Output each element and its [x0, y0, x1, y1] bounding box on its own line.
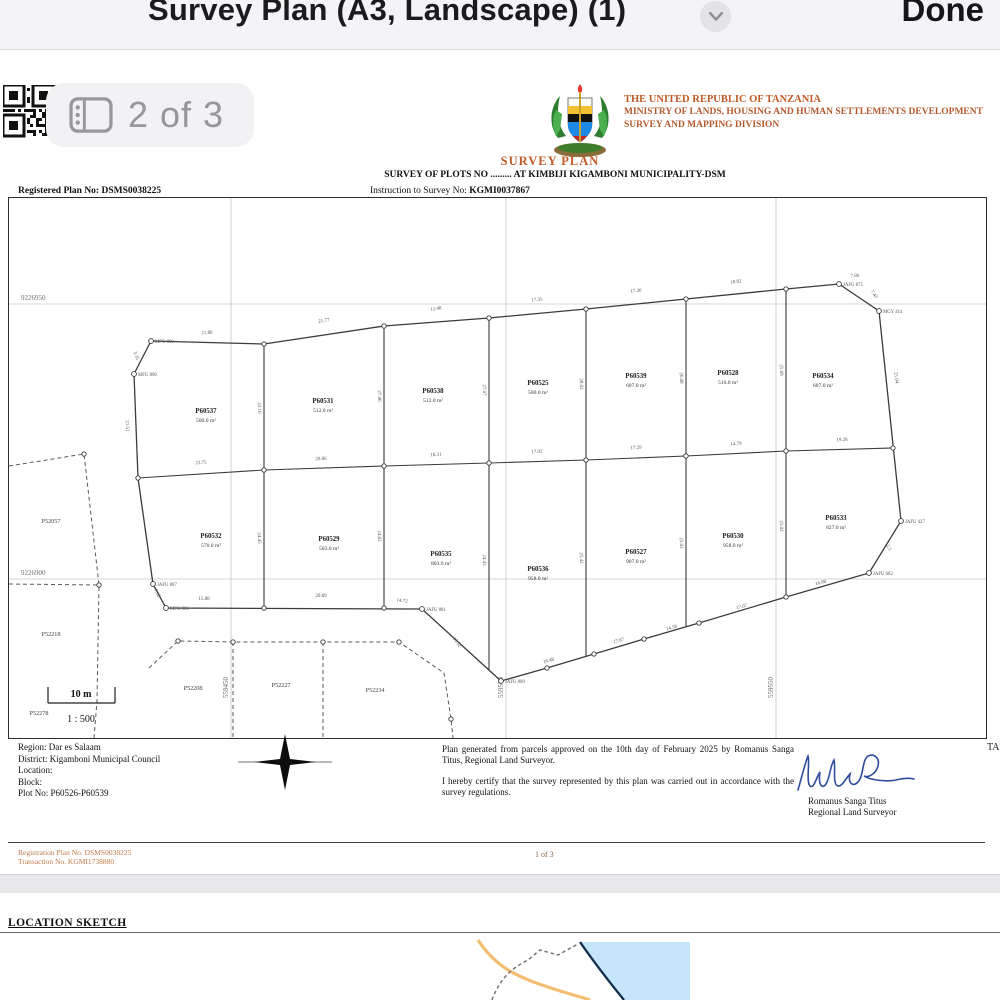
edge-measurement: 17.29: [630, 446, 642, 451]
edge-measurement: 28.02: [578, 378, 583, 390]
top-row-dividers: [264, 289, 786, 470]
scale-bar-label: 10 m: [71, 689, 93, 700]
page-indicator-badge[interactable]: 2 of 3: [46, 83, 254, 147]
plot-area: 510.0 m²: [718, 380, 738, 386]
survey-beacon-node: [97, 583, 101, 587]
plot-number: P60525: [527, 380, 549, 387]
survey-beacon-node: [891, 446, 895, 450]
plot-number: P60532: [200, 533, 222, 540]
instruction-to-survey: Instruction to Survey No: KGMI0037867: [370, 186, 530, 196]
plot-number: P60528: [717, 370, 739, 377]
neighbor-plot-number: P52234: [366, 687, 385, 694]
survey-beacon-node: [382, 606, 386, 610]
location-sketch-title: LOCATION SKETCH: [8, 917, 127, 929]
edge-measurement: 22.16: [256, 402, 261, 414]
page-gap-separator: [0, 874, 1000, 895]
edge-measurement: 21.51: [124, 420, 130, 432]
plot-number: P60534: [812, 373, 834, 380]
plot-number: P60539: [625, 373, 647, 380]
survey-beacon-node: [262, 468, 266, 472]
plot-number: P60537: [195, 408, 217, 415]
beacon-label: JAFU 887: [157, 583, 177, 588]
surveyor-signature: [792, 748, 917, 796]
grid-layer: 92269509226900559450559500559550: [9, 198, 986, 738]
grid-label-northing: 9226900: [21, 569, 46, 577]
survey-plan-title: SURVEY PLAN: [460, 154, 640, 169]
plot-area: 500.0 m²: [196, 418, 216, 424]
chevron-down-icon: [709, 12, 723, 21]
beacon-label: MFG 880: [155, 340, 174, 345]
edge-measurement: 25.92: [778, 520, 783, 532]
edge-measurement: 18.31: [430, 453, 442, 458]
plot-area: 500.0 m²: [528, 390, 548, 396]
footer-transaction-no: Transaction No. KGMI1738880: [18, 857, 131, 866]
survey-beacon-node: [697, 621, 701, 625]
plot-area: 607.0 m²: [626, 383, 646, 389]
edge-measurement: 24.43: [481, 554, 486, 566]
survey-beacon-node: [684, 454, 688, 458]
plot-area: 570.0 m²: [201, 543, 221, 549]
signer-title: Regional Land Surveyor: [808, 807, 896, 818]
plot-area: 958.0 m²: [528, 576, 548, 582]
neighbor-dividers-south: [233, 642, 323, 738]
header-ministry: MINISTRY OF LANDS, HOUSING AND HUMAN SET…: [624, 106, 983, 119]
title-menu-button[interactable]: [700, 1, 731, 32]
neighbor-plot-number: P52057: [42, 518, 61, 525]
plot-number: P60536: [527, 566, 549, 573]
beacon-label: JAFU 682: [873, 572, 893, 577]
pages-sidebar-icon: [68, 96, 114, 134]
survey-beacon-node: [164, 606, 169, 611]
map-edge-note: TA: [987, 742, 1000, 753]
edge-measurement: 3.35: [132, 351, 140, 361]
document-title: Survey Plan (A3, Landscape) (1): [148, 0, 626, 28]
survey-beacon-node: [397, 640, 401, 644]
north-arrow: [230, 732, 340, 794]
survey-subtitle: SURVEY OF PLOTS NO ......... AT KIMBIJI …: [300, 170, 810, 180]
header-country: THE UNITED REPUBLIC OF TANZANIA: [624, 93, 983, 106]
survey-beacon-node: [82, 452, 86, 456]
survey-beacon-node: [149, 339, 154, 344]
neighbor-plot-number: P52208: [184, 685, 203, 692]
plan-drawing: 92269509226900559450559500559550 P605375…: [9, 198, 986, 738]
edge-measurement: 17.67: [613, 637, 626, 645]
ministry-header: THE UNITED REPUBLIC OF TANZANIA MINISTRY…: [624, 93, 983, 132]
survey-map: 92269509226900559450559500559550 P605375…: [8, 197, 987, 739]
plot-number: P60535: [430, 551, 452, 558]
survey-beacon-node: [584, 307, 588, 311]
beacon-label: MGY 414: [883, 310, 903, 315]
edge-measurement: 27.06: [376, 390, 381, 402]
edge-measurement: 17.02: [531, 450, 543, 455]
survey-beacon-node: [382, 464, 386, 468]
registered-plan-no: Registered Plan No: DSMS0038225: [18, 186, 161, 196]
edge-measurement: 20.86: [315, 457, 327, 462]
edge-measurement: 15.88: [198, 597, 210, 602]
edge-measurement: 17.35: [531, 297, 543, 303]
edge-measurement: 7.86: [850, 274, 859, 279]
grid-label-northing: 9226950: [21, 294, 46, 302]
footer-registration: Registration Plan No. DSMS0038225 Transa…: [18, 848, 131, 866]
edge-measurement: 21.77: [318, 318, 330, 325]
beacon-label: JAFU 881: [426, 608, 446, 613]
middle-line: [138, 448, 893, 478]
edge-measurement: 25.42: [578, 552, 583, 564]
edge-measurement: 11.52: [451, 637, 462, 649]
road-line: [478, 940, 590, 1000]
survey-beacon-node: [837, 282, 842, 287]
certification-paragraph-2: I hereby certify that the survey represe…: [442, 776, 794, 798]
survey-beacon-node: [784, 287, 788, 291]
survey-beacon-node: [487, 461, 491, 465]
document-page: 2 of 3 THE UNITED REPUBLIC OF TANZANIA M…: [0, 50, 1000, 874]
survey-beacon-node: [784, 595, 788, 599]
edge-measurement: 21.80: [201, 331, 213, 337]
sheet-footer-line: [8, 842, 985, 843]
neighbor-plot-number: P52278: [30, 710, 49, 717]
edge-measurement: 24.02: [376, 530, 381, 542]
certification-block: Plan generated from parcels approved on …: [442, 744, 794, 808]
survey-beacon-node: [176, 639, 180, 643]
plot-number: P60530: [722, 533, 744, 540]
survey-beacon-node: [136, 476, 140, 480]
neighbor-plot-number: P52218: [42, 631, 61, 638]
edge-measurement: 21.04: [892, 372, 898, 384]
survey-beacon-node: [899, 519, 904, 524]
edge-measurement: 12.48: [430, 306, 442, 312]
plot-number: P60531: [312, 398, 334, 405]
beacon-label: JAFU 875: [843, 283, 863, 288]
plot-number: P60527: [625, 549, 647, 556]
location-sketch-header: LOCATION SKETCH: [0, 917, 1000, 933]
survey-beacon-node: [545, 666, 549, 670]
title-bar: Survey Plan (A3, Landscape) (1) Done: [0, 0, 1000, 50]
bottom-row-dividers: [264, 451, 786, 670]
footer-registration-no: Registration Plan No. DSMS0038225: [18, 848, 131, 857]
plot-area: 503.0 m²: [319, 546, 339, 552]
survey-beacon-node: [877, 309, 882, 314]
survey-beacon-node: [487, 316, 491, 320]
plot-area: 512.0 m²: [313, 408, 333, 414]
plot-area: 958.0 m²: [723, 543, 743, 549]
signer-name: Romanus Sanga Titus: [808, 796, 896, 807]
survey-beacon-node: [132, 372, 137, 377]
edge-measurement: 26.08: [678, 372, 683, 384]
plot-number: P60533: [825, 515, 847, 522]
plot-number: P60529: [318, 536, 340, 543]
neighbor-boundary-west2: [9, 584, 99, 585]
tanzania-coat-of-arms: [540, 78, 620, 158]
survey-beacon-node: [684, 297, 688, 301]
plot-number: P60538: [422, 388, 444, 395]
info-location: Location:: [18, 765, 160, 777]
info-plot-no: Plot No: P60526-P60539: [18, 788, 160, 800]
beacon-label: JAFU 880: [505, 680, 525, 685]
edge-measurement: 19.28: [836, 438, 848, 443]
edge-measurement: 25.02: [678, 537, 683, 549]
edge-measurement: 14.72: [396, 598, 408, 604]
survey-beacon-node: [499, 679, 504, 684]
survey-beacon-node: [449, 717, 453, 721]
edge-measurement: 16.48: [543, 657, 556, 665]
info-region: Region: Dar es Salaam: [18, 742, 160, 754]
edge-measurement: 23.75: [195, 461, 207, 466]
survey-beacon-node: [784, 449, 788, 453]
edge-measurement: 17.30: [630, 288, 642, 294]
survey-beacon-node: [420, 607, 425, 612]
plot-area: 827.0 m²: [826, 525, 846, 531]
beacon-label: JAFU 427: [905, 520, 925, 525]
document-page-3: LOCATION SKETCH: [0, 893, 1000, 1000]
plot-area: 607.0 m²: [813, 383, 833, 389]
scale-ratio-label: 1 : 500: [67, 714, 95, 725]
info-district: District: Kigamboni Municipal Council: [18, 754, 160, 766]
survey-beacon-node: [867, 571, 872, 576]
info-block-row: Block:: [18, 777, 160, 789]
plot-area: 907.0 m²: [626, 559, 646, 565]
edge-measurement: 24.45: [256, 532, 261, 544]
location-sketch-map: [440, 938, 700, 1000]
signer-identity: Romanus Sanga Titus Regional Land Survey…: [808, 796, 896, 818]
water-area: [580, 942, 690, 1000]
edge-measurement: 27.07: [481, 384, 486, 396]
page-indicator-label: 2 of 3: [128, 94, 224, 136]
survey-beacon-node: [592, 652, 596, 656]
grid-label-easting: 559450: [222, 677, 230, 699]
plan-info-block: Region: Dar es Salaam District: Kigambon…: [18, 742, 160, 800]
edge-measurement: 20.89: [315, 594, 327, 599]
neighbor-plot-number: P52227: [272, 682, 291, 689]
beacon-label: MFG 886: [170, 607, 189, 612]
survey-beacon-node: [231, 640, 235, 644]
edge-measurement: 7.42: [869, 290, 878, 300]
label-layer: P60537500.0 m²P60531512.0 m²P60538512.0 …: [30, 274, 926, 725]
survey-beacon-node: [321, 640, 325, 644]
edge-measurement: 14.79: [730, 442, 742, 447]
edge-measurement: 25.09: [778, 364, 783, 376]
plot-area: 803.0 m²: [431, 561, 451, 567]
survey-beacon-node: [584, 458, 588, 462]
edge-measurement: 18.82: [730, 279, 742, 285]
done-button[interactable]: Done: [902, 0, 985, 29]
survey-beacon-node: [151, 582, 156, 587]
certification-paragraph-1: Plan generated from parcels approved on …: [442, 744, 794, 766]
survey-beacon-node: [262, 606, 266, 610]
plot-area: 512.0 m²: [423, 398, 443, 404]
footer-page-number: 1 of 3: [535, 850, 554, 859]
header-division: SURVEY AND MAPPING DIVISION: [624, 119, 983, 132]
grid-label-easting: 559550: [767, 677, 775, 699]
survey-beacon-node: [262, 342, 266, 346]
survey-beacon-node: [382, 324, 386, 328]
survey-beacon-node: [642, 637, 646, 641]
beacon-label: MFG 896: [138, 373, 157, 378]
